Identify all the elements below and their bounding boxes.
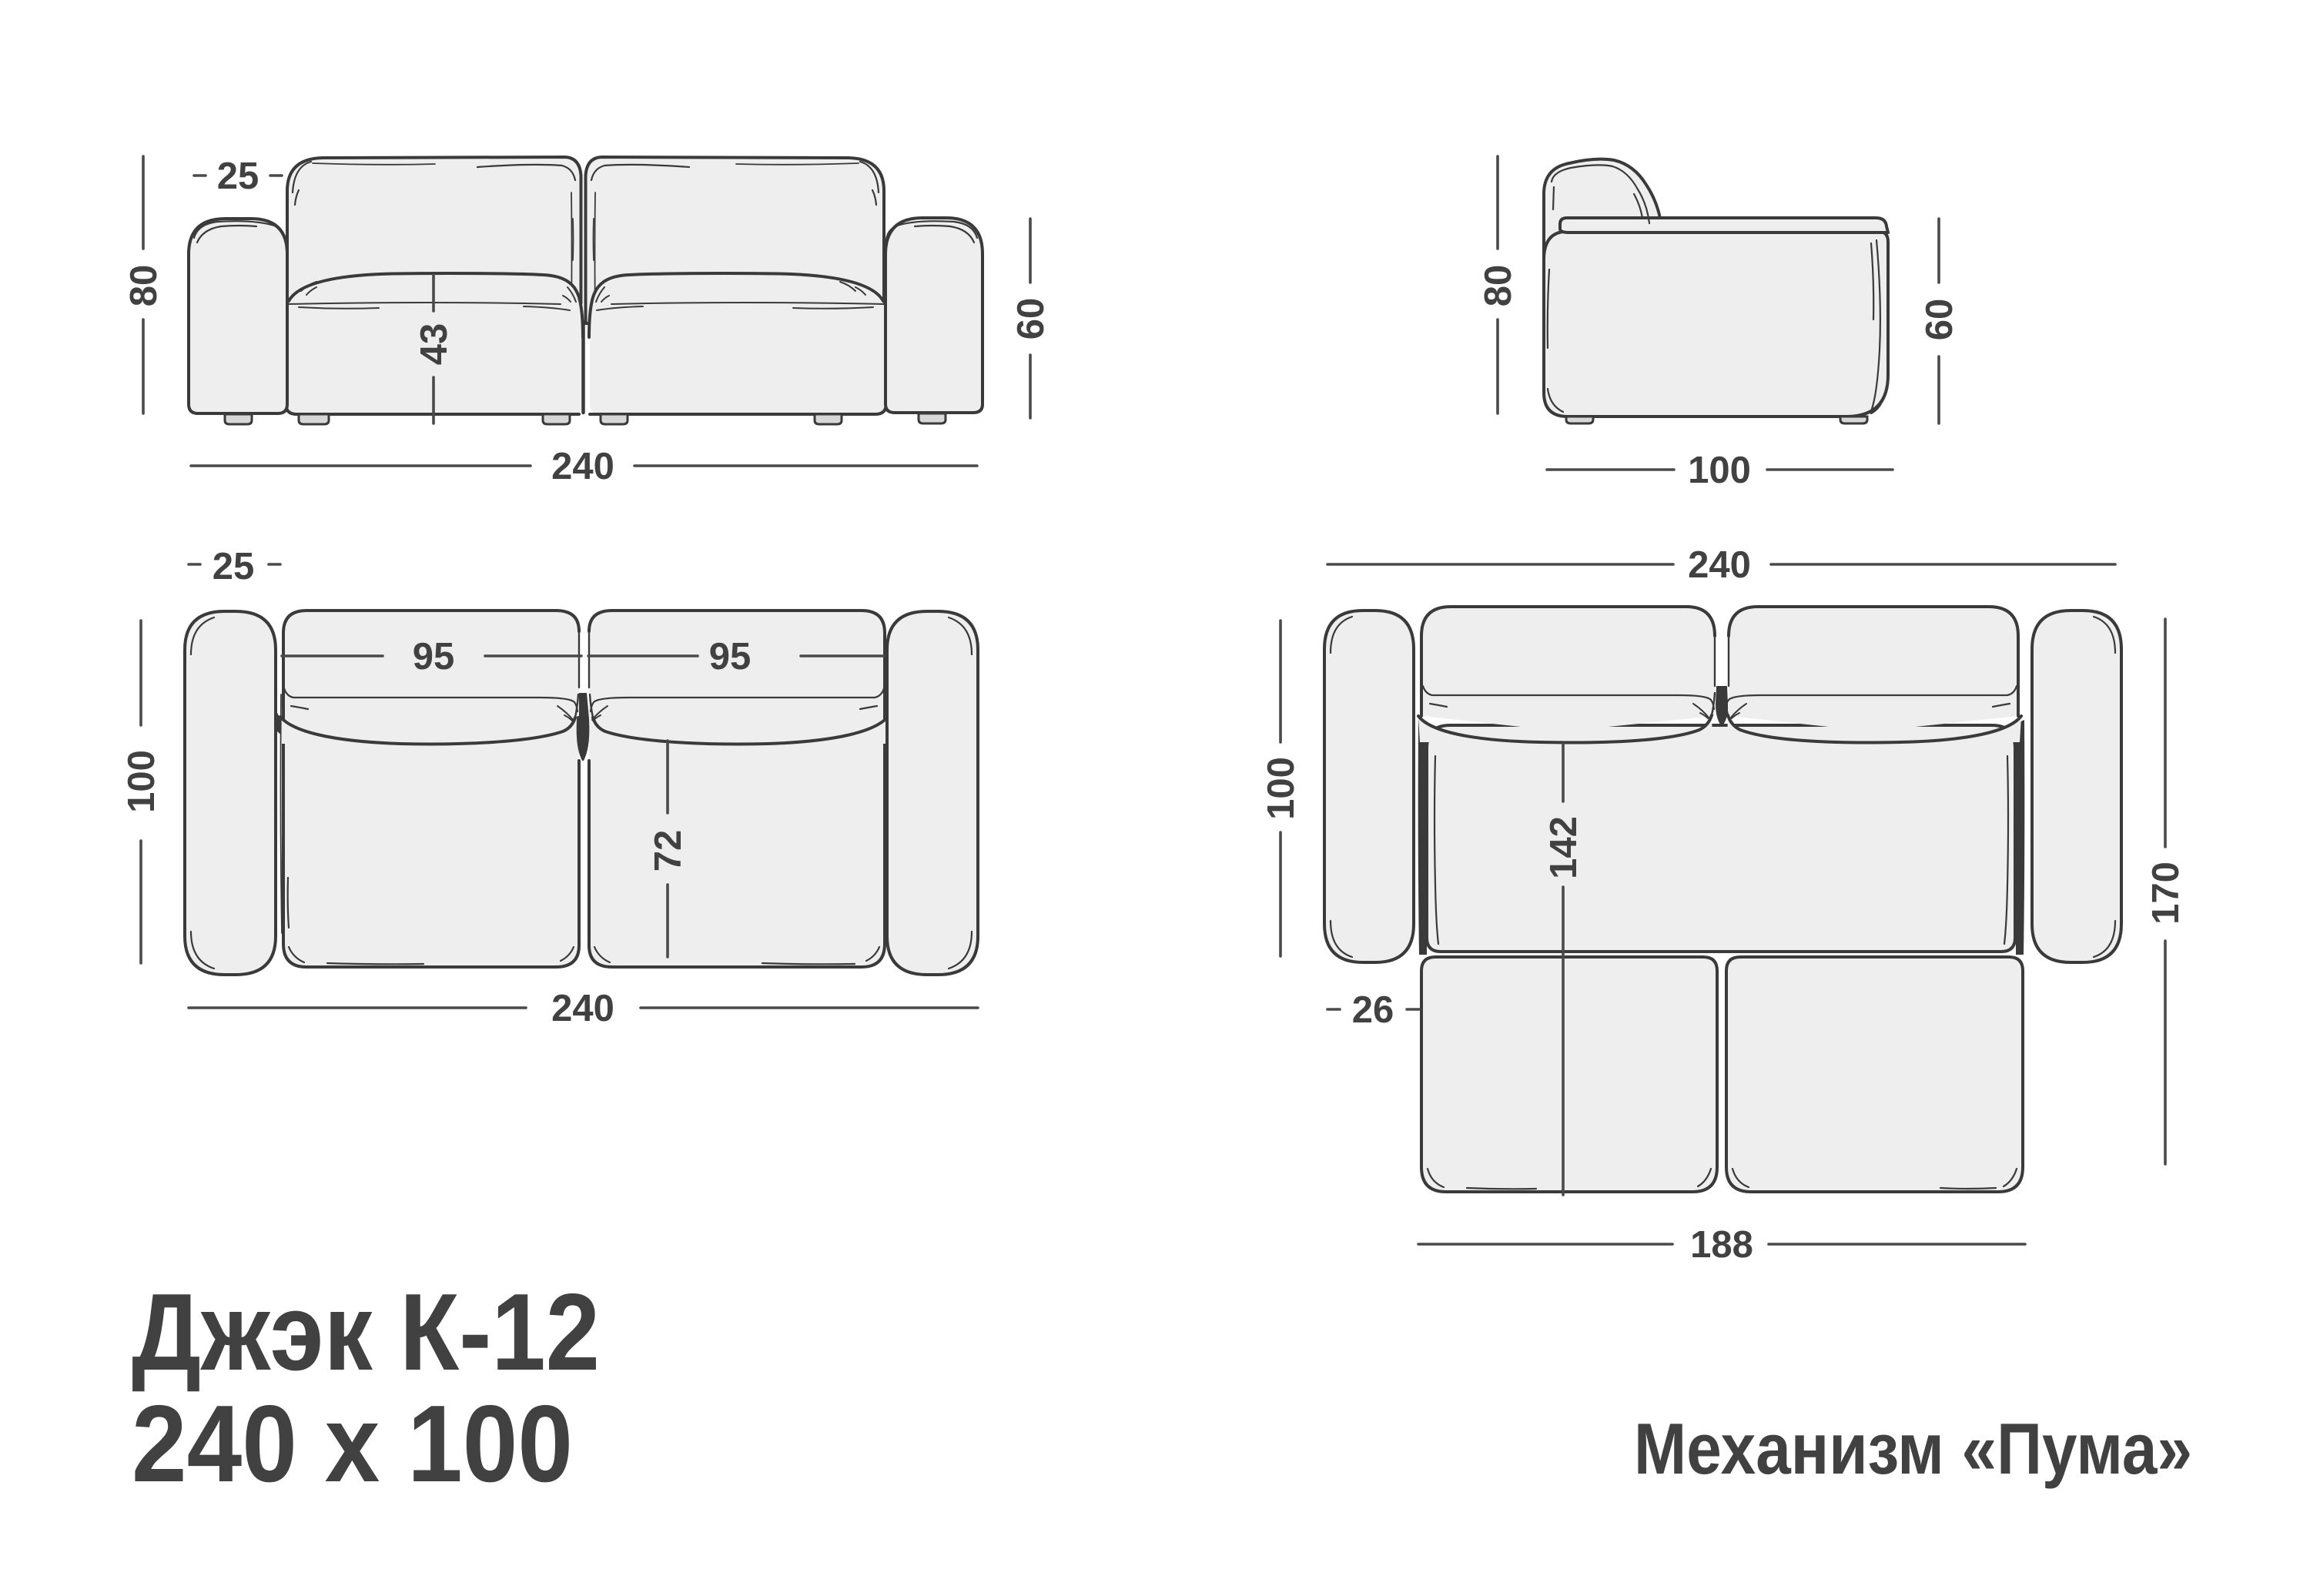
svg-text:240 x 100: 240 x 100	[132, 1383, 573, 1505]
svg-text:95: 95	[709, 636, 752, 678]
svg-text:60: 60	[1010, 298, 1052, 340]
svg-text:Джэк К-12: Джэк К-12	[132, 1271, 600, 1394]
svg-text:100: 100	[1688, 450, 1751, 491]
svg-text:240: 240	[1688, 544, 1751, 586]
svg-text:Механизм «Пума»: Механизм «Пума»	[1634, 1408, 2192, 1489]
svg-text:240: 240	[551, 446, 614, 487]
svg-text:170: 170	[2145, 862, 2187, 925]
svg-text:188: 188	[1690, 1224, 1753, 1266]
svg-text:100: 100	[1260, 757, 1302, 820]
svg-text:60: 60	[1919, 299, 1960, 341]
svg-text:25: 25	[217, 156, 259, 197]
svg-text:80: 80	[1478, 265, 1519, 307]
svg-text:240: 240	[551, 988, 614, 1029]
svg-text:100: 100	[121, 750, 162, 813]
svg-text:25: 25	[213, 546, 255, 587]
svg-text:95: 95	[413, 636, 455, 678]
svg-text:142: 142	[1543, 816, 1585, 879]
svg-text:43: 43	[413, 323, 455, 366]
svg-text:80: 80	[123, 265, 165, 307]
svg-text:26: 26	[1352, 989, 1394, 1031]
svg-text:72: 72	[648, 830, 689, 872]
